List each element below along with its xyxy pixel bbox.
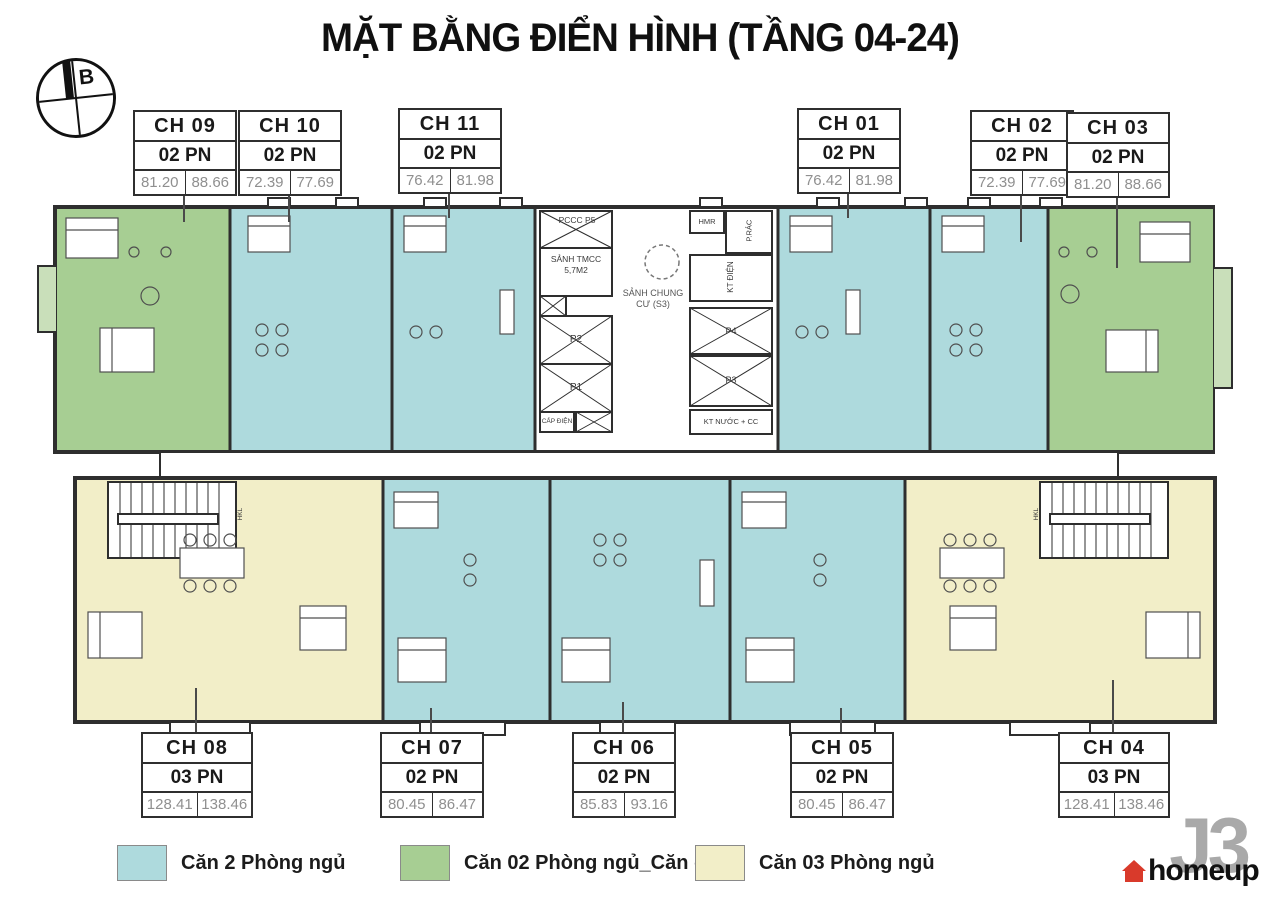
unit-callout-ch06: CH 06 02 PN 85.8393.16 [572, 732, 676, 818]
unit-name: CH 01 [799, 110, 899, 140]
unit-bedrooms: 02 PN [1068, 144, 1168, 173]
leader-ch10 [288, 192, 290, 222]
unit-area-gross: 138.46 [1115, 793, 1169, 816]
core-label-trash: P.RÁC [744, 211, 753, 251]
unit-name: CH 10 [240, 112, 340, 142]
unit-area-gross: 81.98 [451, 169, 501, 192]
unit-area-net: 72.39 [972, 171, 1023, 194]
unit-area-net: 80.45 [382, 793, 433, 816]
unit-name: CH 08 [143, 734, 251, 764]
unit-name: CH 02 [972, 112, 1072, 142]
unit-area-gross: 88.66 [1119, 173, 1169, 196]
unit-name: CH 07 [382, 734, 482, 764]
balcony-right [1213, 268, 1232, 388]
legend-label-2pn: Căn 2 Phòng ngủ [181, 852, 345, 875]
unit-bedrooms: 03 PN [143, 764, 251, 793]
unit-callout-ch02: CH 02 02 PN 72.3977.69 [970, 110, 1074, 196]
core-label-lift-p3: P3 [690, 375, 772, 386]
unit-area-gross: 77.69 [1023, 171, 1073, 194]
corridor [160, 452, 1118, 478]
unit-bedrooms: 02 PN [799, 140, 899, 169]
legend-label-3pn: Căn 03 Phòng ngủ [759, 852, 935, 875]
core-label-fire-lift: PCCC P5 [558, 215, 596, 226]
bottom-wing [75, 478, 1215, 735]
core-label-power: CẤP ĐIỆN [536, 418, 578, 426]
leader-ch03 [1116, 194, 1118, 268]
unit-name: CH 03 [1068, 114, 1168, 144]
unit-bedrooms: 03 PN [1060, 764, 1168, 793]
top-wing [38, 198, 1232, 452]
unit-callout-ch08: CH 08 03 PN 128.41138.46 [141, 732, 253, 818]
logo-row: homeup [1122, 854, 1259, 888]
unit-area-gross: 138.46 [198, 793, 252, 816]
unit-area-gross: 93.16 [625, 793, 675, 816]
unit-callout-ch01: CH 01 02 PN 76.4281.98 [797, 108, 901, 194]
unit-area-net: 76.42 [400, 169, 451, 192]
unit-area-net: 72.39 [240, 171, 291, 194]
unit-callout-ch10: CH 10 02 PN 72.3977.69 [238, 110, 342, 196]
unit-area-net: 81.20 [135, 171, 186, 194]
unit-bedrooms: 02 PN [792, 764, 892, 793]
legend-label-2pn-corner: Căn 02 Phòng ngủ_Căn góc [464, 852, 730, 875]
unit-area-net: 81.20 [1068, 173, 1119, 196]
unit-area-net: 85.83 [574, 793, 625, 816]
unit-bedrooms: 02 PN [135, 142, 235, 171]
unit-area-gross: 77.69 [291, 171, 341, 194]
unit-name: CH 04 [1060, 734, 1168, 764]
homeup-logo: J3 homeup [1120, 814, 1272, 900]
stair-label-left: HKL [237, 499, 245, 529]
legend-item-2pn-corner: Căn 02 Phòng ngủ_Căn góc [400, 845, 730, 881]
legend-swatch-3pn [695, 845, 745, 881]
unit-area-gross: 86.47 [433, 793, 483, 816]
legend-swatch-2pn [117, 845, 167, 881]
house-icon [1122, 860, 1147, 883]
core-label-lift-p4: P4 [690, 326, 772, 337]
stair-label-right: HKL [1033, 499, 1041, 529]
leader-ch06 [622, 702, 624, 732]
core-label-fire-lobby: SẢNH TMCC 5,7M2 [546, 254, 606, 275]
unit-area-gross: 81.98 [850, 169, 900, 192]
legend-item-2pn: Căn 2 Phòng ngủ [117, 845, 345, 881]
legend-swatch-2pn-corner [400, 845, 450, 881]
unit-area-net: 128.41 [1060, 793, 1115, 816]
unit-name: CH 09 [135, 112, 235, 142]
leader-ch09 [183, 192, 185, 222]
leader-ch02 [1020, 192, 1022, 242]
staircase-right [1040, 482, 1168, 558]
legend-item-3pn: Căn 03 Phòng ngủ [695, 845, 935, 881]
unit-callout-ch03: CH 03 02 PN 81.2088.66 [1066, 112, 1170, 198]
leader-ch07 [430, 708, 432, 732]
unit-bedrooms: 02 PN [240, 142, 340, 171]
core-label-elec-shaft: KT ĐIỆN [726, 247, 736, 307]
unit-callout-ch04: CH 04 03 PN 128.41138.46 [1058, 732, 1170, 818]
unit-name: CH 06 [574, 734, 674, 764]
unit-callout-ch05: CH 05 02 PN 80.4586.47 [790, 732, 894, 818]
unit-area-gross: 86.47 [843, 793, 893, 816]
unit-area-net: 128.41 [143, 793, 198, 816]
unit-bedrooms: 02 PN [382, 764, 482, 793]
unit-callout-ch09: CH 09 02 PN 81.2088.66 [133, 110, 237, 196]
leader-ch04 [1112, 680, 1114, 732]
core-label-shared-lobby: SẢNH CHUNG CƯ (S3) [620, 288, 686, 311]
unit-area-net: 76.42 [799, 169, 850, 192]
unit-name: CH 11 [400, 110, 500, 140]
core-label-lift-p2: P2 [540, 334, 612, 347]
unit-area-gross: 88.66 [186, 171, 236, 194]
unit-bedrooms: 02 PN [972, 142, 1072, 171]
unit-callout-ch07: CH 07 02 PN 80.4586.47 [380, 732, 484, 818]
unit-bedrooms: 02 PN [574, 764, 674, 793]
unit-area-net: 80.45 [792, 793, 843, 816]
unit-name: CH 05 [792, 734, 892, 764]
unit-bedrooms: 02 PN [400, 140, 500, 169]
leader-ch08 [195, 688, 197, 732]
balcony-left [38, 266, 57, 332]
core-label-hmr: HMR [690, 217, 724, 226]
leader-ch01 [847, 190, 849, 218]
unit-callout-ch11: CH 11 02 PN 76.4281.98 [398, 108, 502, 194]
logo-text: homeup [1148, 854, 1259, 888]
floor-plan-page: MẶT BẰNG ĐIỂN HÌNH (TẦNG 04-24) B [0, 0, 1280, 904]
leader-ch11 [448, 190, 450, 218]
core-label-lift-p1: P1 [540, 382, 612, 395]
leader-ch05 [840, 708, 842, 732]
core-label-water-shaft: KT NƯỚC + CC [690, 417, 772, 426]
staircase-left [108, 482, 236, 558]
